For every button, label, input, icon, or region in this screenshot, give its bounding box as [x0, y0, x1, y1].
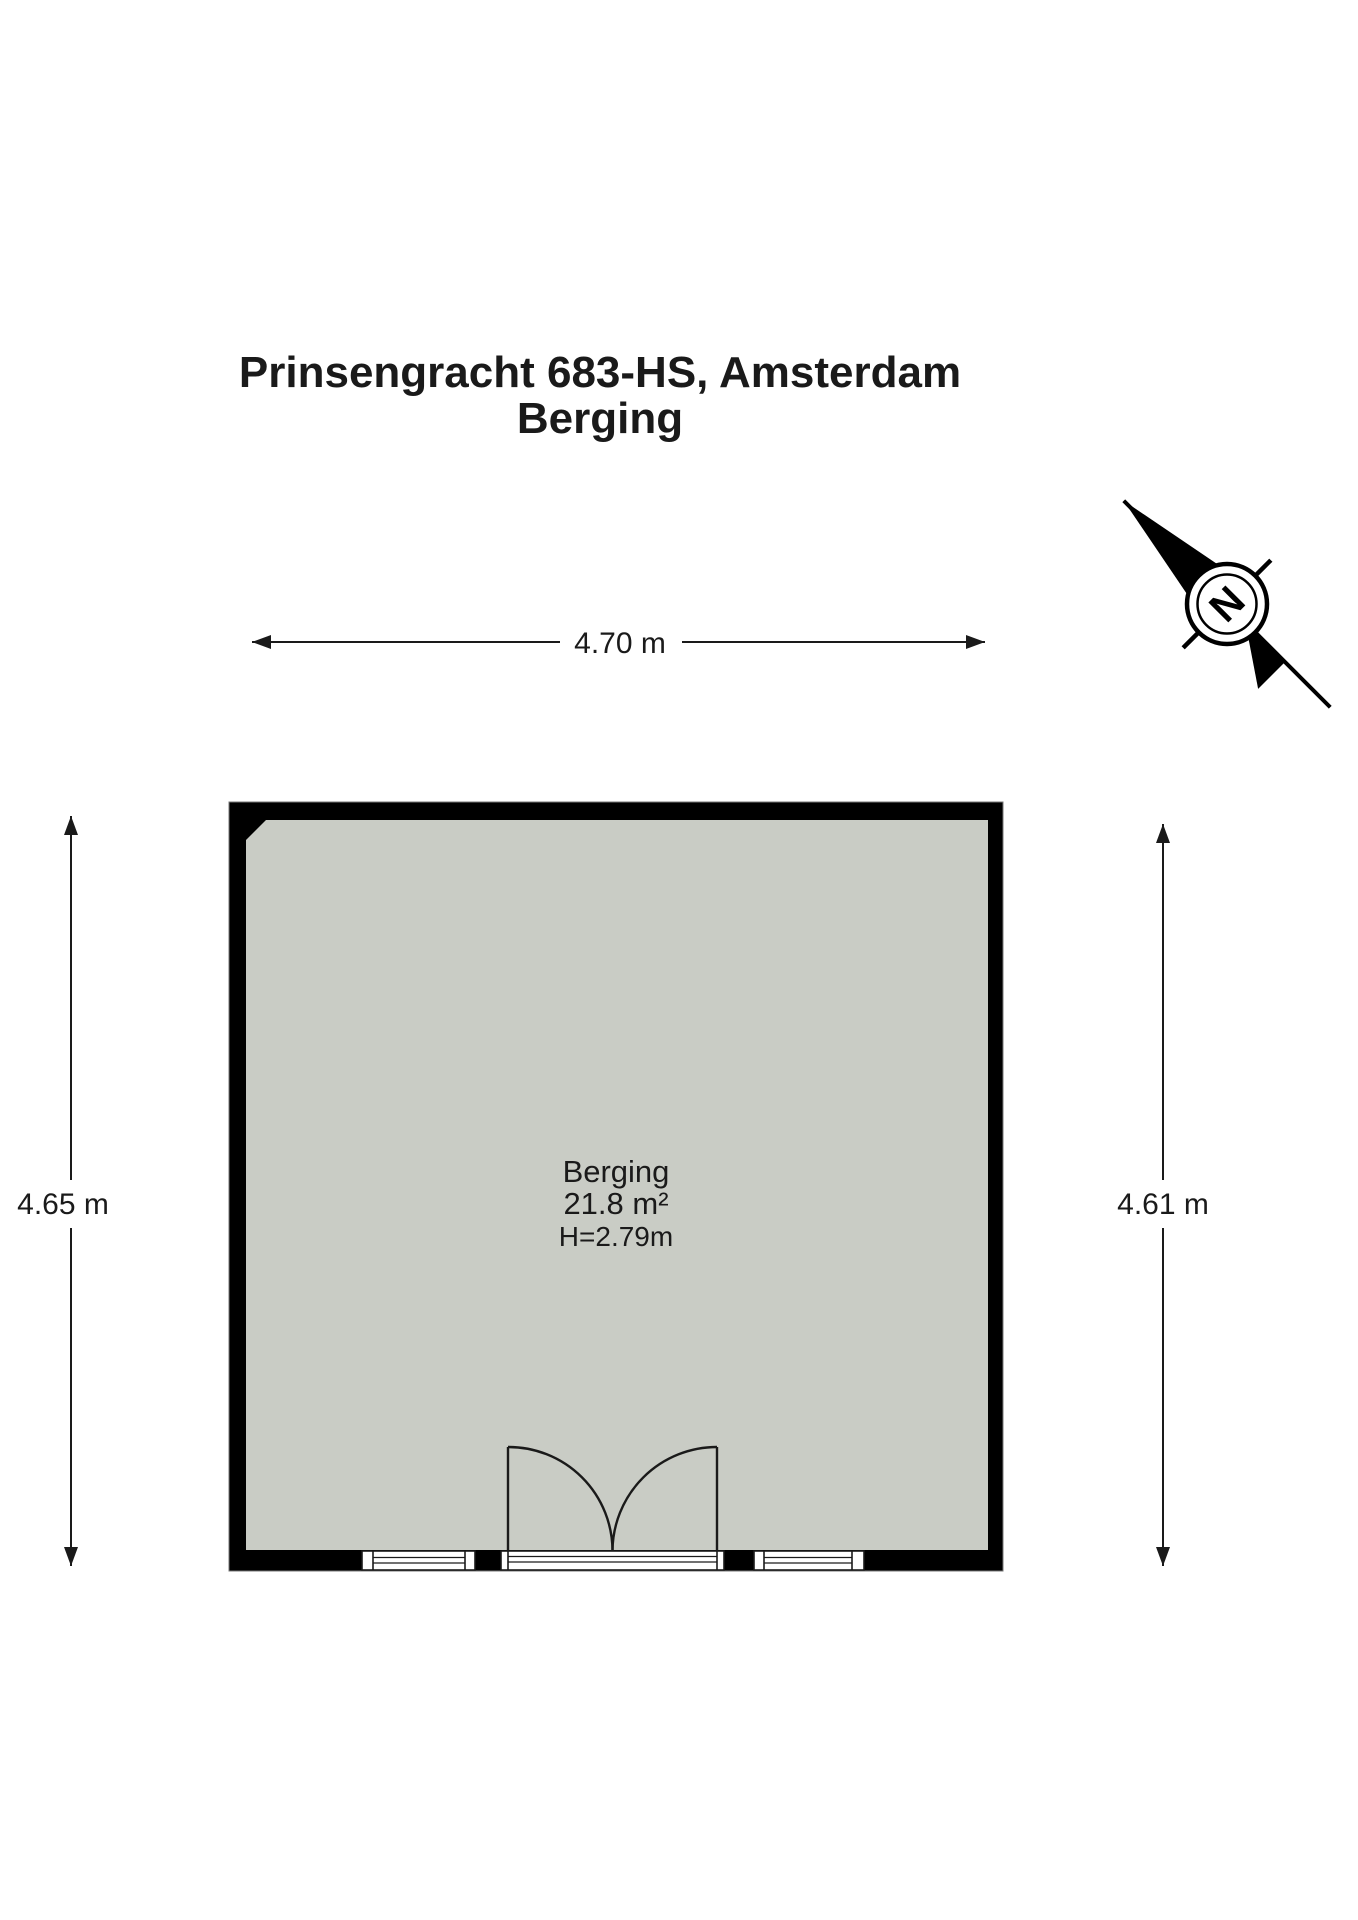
dimension-label-left: 4.65 m [17, 1188, 109, 1221]
room-name-label: Berging [563, 1154, 670, 1189]
window-right [754, 1551, 864, 1570]
arrowhead-left-icon [252, 635, 271, 649]
dimension-label-right: 4.61 m [1117, 1188, 1209, 1221]
door-threshold [501, 1551, 724, 1570]
arrowhead-down-icon [64, 1547, 78, 1566]
arrowhead-up-icon [1156, 824, 1170, 843]
floorplan-page: Prinsengracht 683-HS, Amsterdam Berging … [0, 0, 1358, 1920]
window-left [362, 1551, 475, 1570]
arrowhead-down-icon [1156, 1547, 1170, 1566]
arrowhead-up-icon [64, 816, 78, 835]
floorplan-canvas: 4.70 m 4.65 m 4.61 m [0, 0, 1358, 1920]
room-height-label: H=2.79m [559, 1221, 673, 1252]
north-compass-icon: N [1080, 457, 1358, 751]
room-area-label: 21.8 m² [563, 1186, 668, 1221]
arrowhead-right-icon [966, 635, 985, 649]
dimension-label-top: 4.70 m [574, 627, 666, 660]
